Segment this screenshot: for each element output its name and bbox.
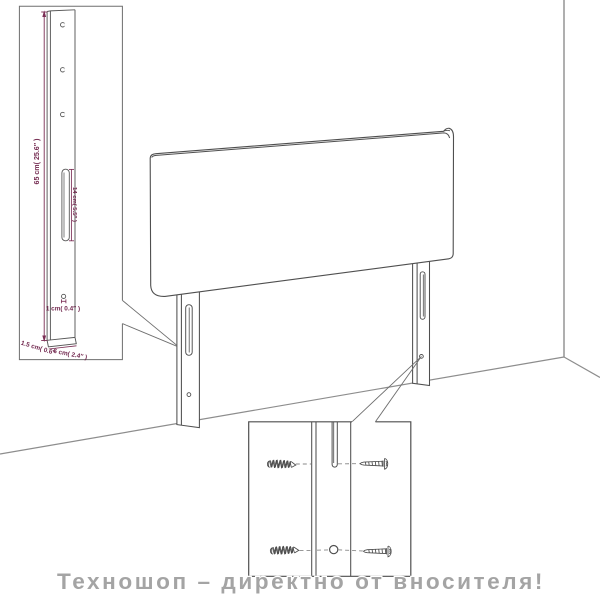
- svg-text:14 cm( 5.5″ ): 14 cm( 5.5″ ): [71, 187, 77, 222]
- svg-text:Техношоп – директно от вносите: Техношоп – директно от вносителя!: [57, 569, 545, 594]
- svg-text:65 cm( 25.6″ ): 65 cm( 25.6″ ): [33, 138, 41, 185]
- svg-text:1 cm( 0.4″ ): 1 cm( 0.4″ ): [46, 306, 80, 313]
